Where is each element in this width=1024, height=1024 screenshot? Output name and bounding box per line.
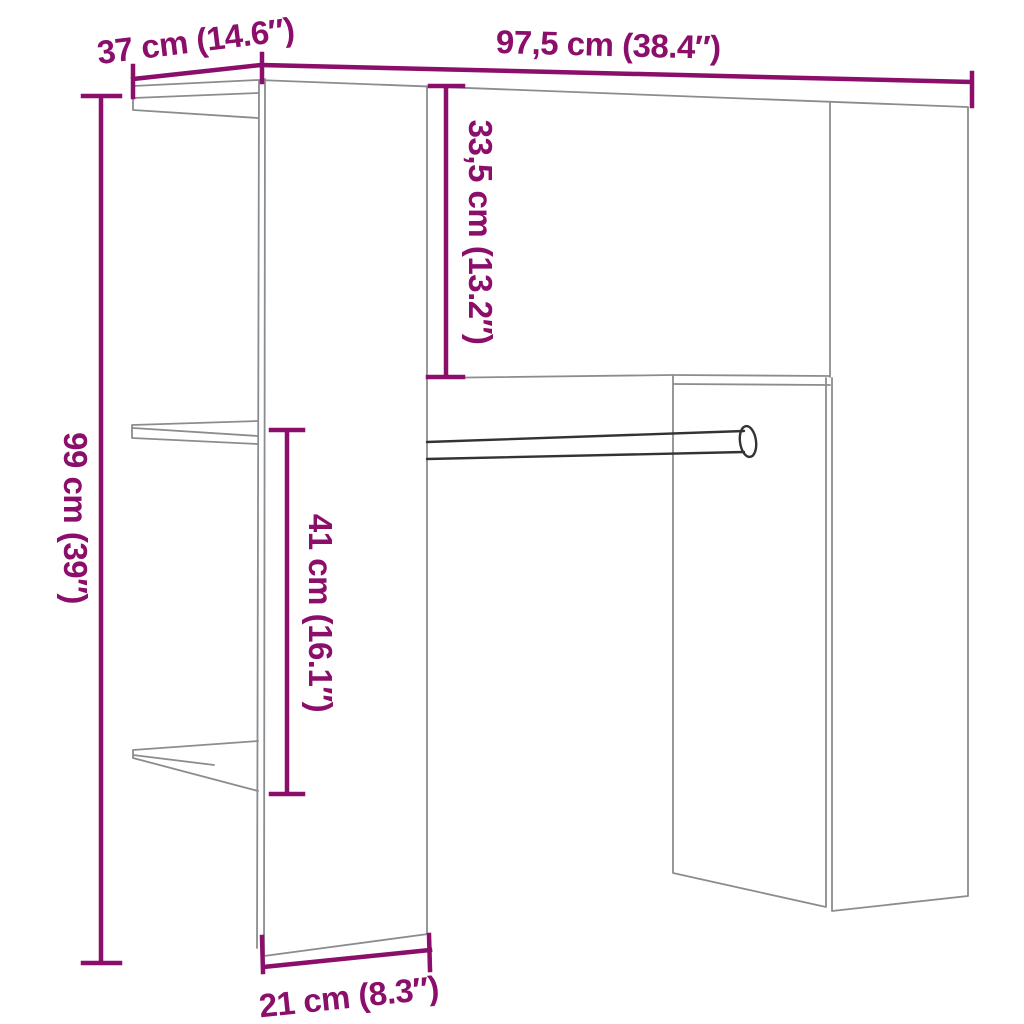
total-height-label: 99 cm (39″) (57, 432, 94, 604)
cabinet-height-label: 33,5 cm (13.2″) (462, 120, 499, 345)
right-cabinet-column (673, 103, 968, 911)
middle-shelf (132, 421, 258, 444)
dimension-lines (83, 54, 972, 972)
dimension-diagram: 37 cm (14.6″) 97,5 cm (38.4″) 33,5 cm (1… (0, 0, 1024, 1024)
furniture-outline (132, 79, 968, 956)
dimension-labels: 37 cm (14.6″) 97,5 cm (38.4″) 33,5 cm (1… (57, 10, 721, 1024)
rail-height-dimension-line (271, 430, 303, 794)
top-width-label: 97,5 cm (38.4″) (495, 23, 721, 66)
hallway-unit-drawing: 37 cm (14.6″) 97,5 cm (38.4″) 33,5 cm (1… (0, 0, 1024, 1024)
left-side-panel (257, 79, 428, 956)
top-width-dimension-line (262, 65, 972, 106)
top-depth-label: 37 cm (14.6″) (95, 10, 296, 71)
upper-cabinet-bottom (428, 375, 830, 385)
cabinet-height-dimension-line (428, 86, 463, 377)
lower-shelf (133, 741, 258, 791)
panel-depth-label: 21 cm (8.3″) (257, 969, 440, 1024)
rail-height-label: 41 cm (16.1″) (302, 514, 339, 712)
clothes-rail-bar (427, 431, 744, 459)
clothes-rail (427, 425, 758, 459)
